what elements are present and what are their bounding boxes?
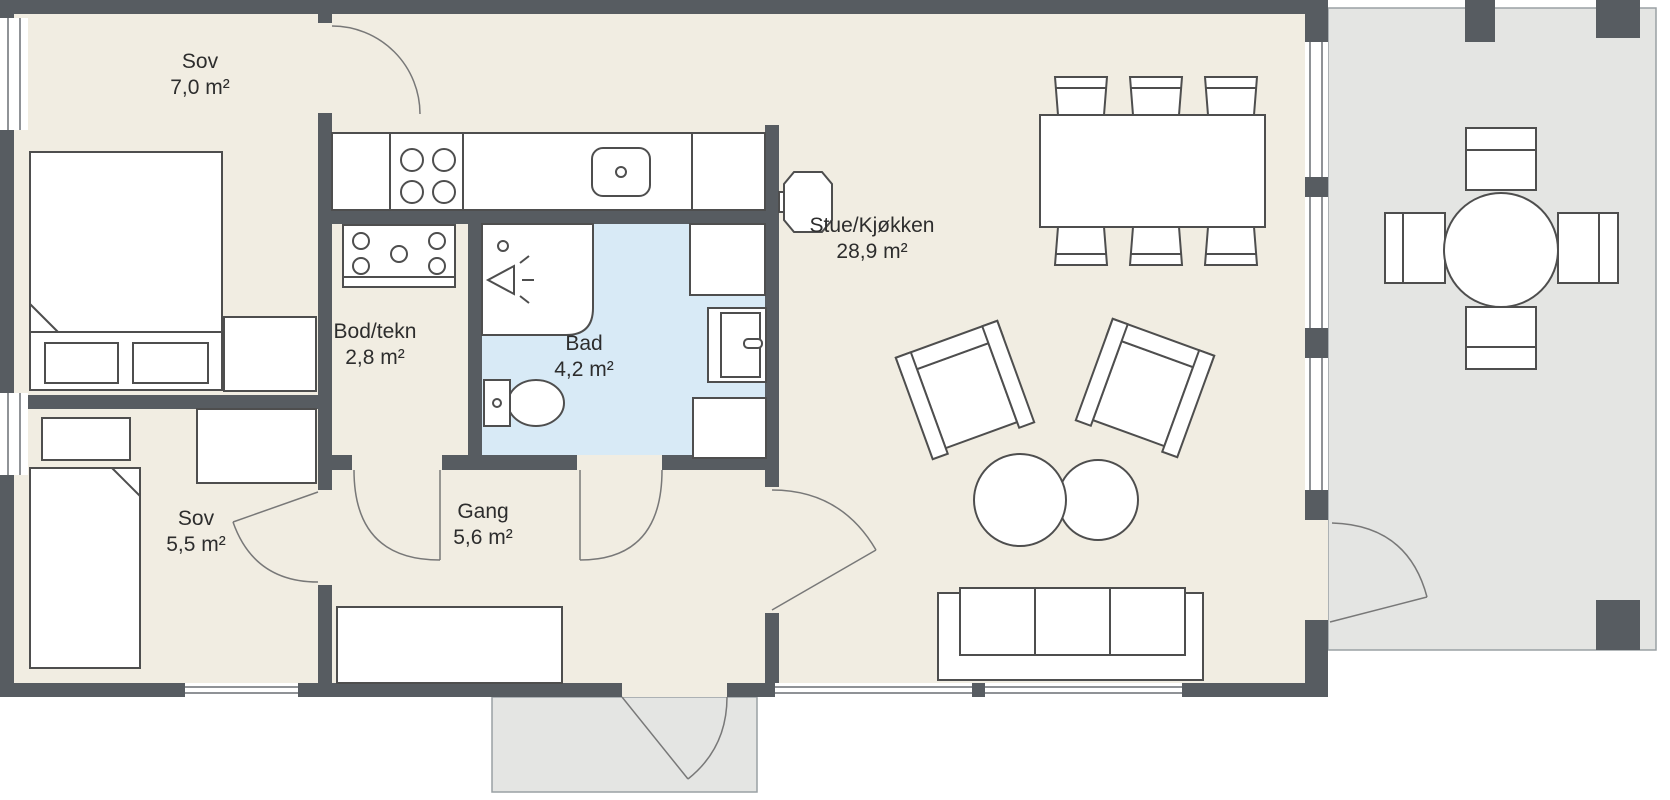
washing-machine xyxy=(708,308,766,382)
dining-table xyxy=(1040,115,1265,227)
opening-bed2-door xyxy=(318,490,332,585)
pillow xyxy=(42,418,130,460)
desk xyxy=(197,409,316,483)
bath-cabinet-top xyxy=(690,224,765,295)
wall-kitchen-divider xyxy=(318,210,765,224)
room-label-bod: Bod/tekn xyxy=(334,320,417,343)
room-area-sov2: 5,5 m² xyxy=(166,533,226,556)
pillow xyxy=(45,343,118,383)
sofa xyxy=(938,588,1203,680)
room-label-gang: Gang xyxy=(457,500,508,523)
opening-entrance-door xyxy=(622,683,727,697)
room-label-sov2: Sov xyxy=(178,507,215,530)
terrace-post-top-right xyxy=(1596,0,1640,38)
room-area-gang: 5,6 m² xyxy=(453,526,513,549)
window-left-bed2 xyxy=(0,393,28,475)
room-area-bod: 2,8 m² xyxy=(345,346,405,369)
room-area-bad: 4,2 m² xyxy=(554,358,614,381)
terrace-round-table xyxy=(1444,193,1558,307)
room-label-stue: Stue/Kjøkken xyxy=(810,214,935,237)
window-bottom-stue-1 xyxy=(775,683,972,697)
opening-stue-door xyxy=(765,487,779,613)
window-bottom-stue-2 xyxy=(985,683,1182,697)
dresser xyxy=(224,317,316,391)
wall-bod-bad xyxy=(468,224,482,455)
opening-bed1-door xyxy=(318,23,332,113)
shower xyxy=(482,224,593,335)
pillow xyxy=(133,343,208,383)
room-area-sov1: 7,0 m² xyxy=(170,76,230,99)
toilet xyxy=(484,380,564,426)
opening-bad-door xyxy=(577,455,662,470)
bath-cabinet-bottom xyxy=(693,398,766,458)
dining-set xyxy=(1040,77,1265,265)
double-bed xyxy=(30,152,222,390)
single-bed xyxy=(30,468,140,668)
window-left-bed1 xyxy=(0,18,28,130)
room-label-bad: Bad xyxy=(565,332,602,355)
room-label-sov1: Sov xyxy=(182,50,219,73)
terrace-post-top xyxy=(1465,0,1495,42)
washer-bod xyxy=(343,225,455,287)
wall-bad-right xyxy=(765,125,779,487)
opening-bod-door xyxy=(352,455,442,470)
wall-top xyxy=(0,0,1328,14)
floor-plan-canvas: Sov 7,0 m² Bod/tekn 2,8 m² Bad 4,2 m² St… xyxy=(0,0,1670,800)
window-wall-terrace xyxy=(1305,0,1328,697)
wall-bed1-bed2 xyxy=(14,395,332,409)
terrace-post-bottom-right xyxy=(1596,600,1640,650)
kitchen-counter xyxy=(332,133,765,210)
room-area-stue: 28,9 m² xyxy=(836,240,907,263)
floor-plan-svg: Sov 7,0 m² Bod/tekn 2,8 m² Bad 4,2 m² St… xyxy=(0,0,1670,800)
gang-wardrobe xyxy=(337,607,562,683)
window-bottom-bed2 xyxy=(185,683,298,697)
